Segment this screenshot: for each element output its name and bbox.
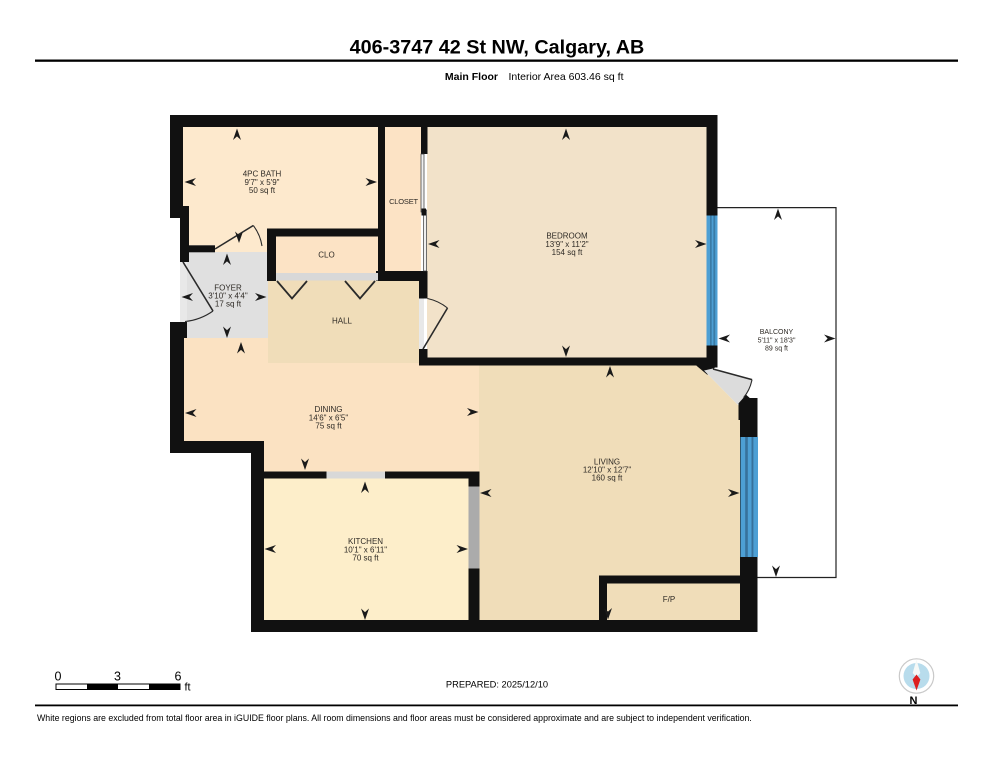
svg-text:F/P: F/P [663, 595, 675, 604]
svg-text:CLOSET: CLOSET [389, 197, 418, 206]
svg-text:CLO: CLO [318, 251, 334, 260]
svg-text:50 sq ft: 50 sq ft [249, 186, 276, 195]
svg-text:154 sq ft: 154 sq ft [552, 248, 583, 257]
svg-text:89 sq ft: 89 sq ft [765, 345, 788, 352]
svg-text:70 sq ft: 70 sq ft [352, 554, 379, 563]
svg-text:3: 3 [114, 670, 121, 684]
svg-text:406-3747 42 St NW, Calgary, AB: 406-3747 42 St NW, Calgary, AB [350, 37, 645, 59]
svg-text:6: 6 [175, 670, 182, 684]
svg-text:75 sq ft: 75 sq ft [315, 421, 342, 430]
svg-text:17 sq ft: 17 sq ft [215, 300, 242, 309]
svg-text:PREPARED: 2025/12/10: PREPARED: 2025/12/10 [446, 680, 548, 690]
svg-text:Interior Area 603.46 sq ft: Interior Area 603.46 sq ft [509, 71, 624, 83]
svg-text:BALCONY: BALCONY [760, 329, 794, 336]
svg-text:160 sq ft: 160 sq ft [592, 474, 623, 483]
svg-text:White regions are excluded fro: White regions are excluded from total fl… [37, 713, 752, 723]
svg-text:0: 0 [55, 670, 62, 684]
svg-text:ft: ft [185, 682, 191, 694]
svg-text:5'11" x 18'3": 5'11" x 18'3" [758, 337, 796, 344]
svg-text:HALL: HALL [332, 317, 353, 326]
svg-text:Main Floor: Main Floor [445, 71, 498, 83]
